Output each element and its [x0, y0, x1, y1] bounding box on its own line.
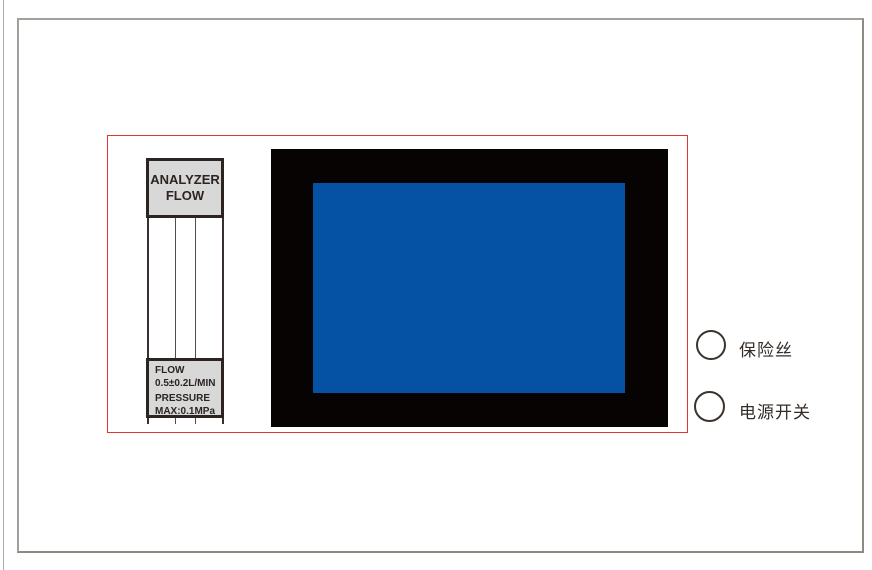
power-switch-circle [694, 391, 725, 422]
left-edge-line [3, 0, 4, 570]
flow-meter-spec-line3: PRESSURE [155, 393, 221, 406]
flow-meter-spec-plate: FLOW 0.5±0.2L/MIN PRESSURE MAX:0.1MPa [146, 358, 224, 418]
flow-meter-spec-line1: FLOW [155, 365, 221, 378]
flow-meter-title-plate: ANALYZER FLOW [146, 158, 224, 218]
fuse-label: 保险丝 [739, 336, 793, 361]
flow-meter-spec-line2: 0.5±0.2L/MIN [155, 378, 221, 391]
flow-meter-spec-line4: MAX:0.1MPa [155, 406, 221, 419]
flow-meter-title-line2: FLOW [166, 188, 204, 204]
display-screen-bezel [271, 149, 668, 427]
fuse-holder-circle [696, 330, 726, 360]
power-switch-label: 电源开关 [739, 398, 811, 423]
flow-meter-title-line1: ANALYZER [150, 172, 220, 188]
analyzer-front-panel-diagram: ANALYZER FLOW FLOW 0.5±0.2L/MIN PRESSURE… [0, 0, 872, 570]
display-screen [313, 183, 625, 393]
